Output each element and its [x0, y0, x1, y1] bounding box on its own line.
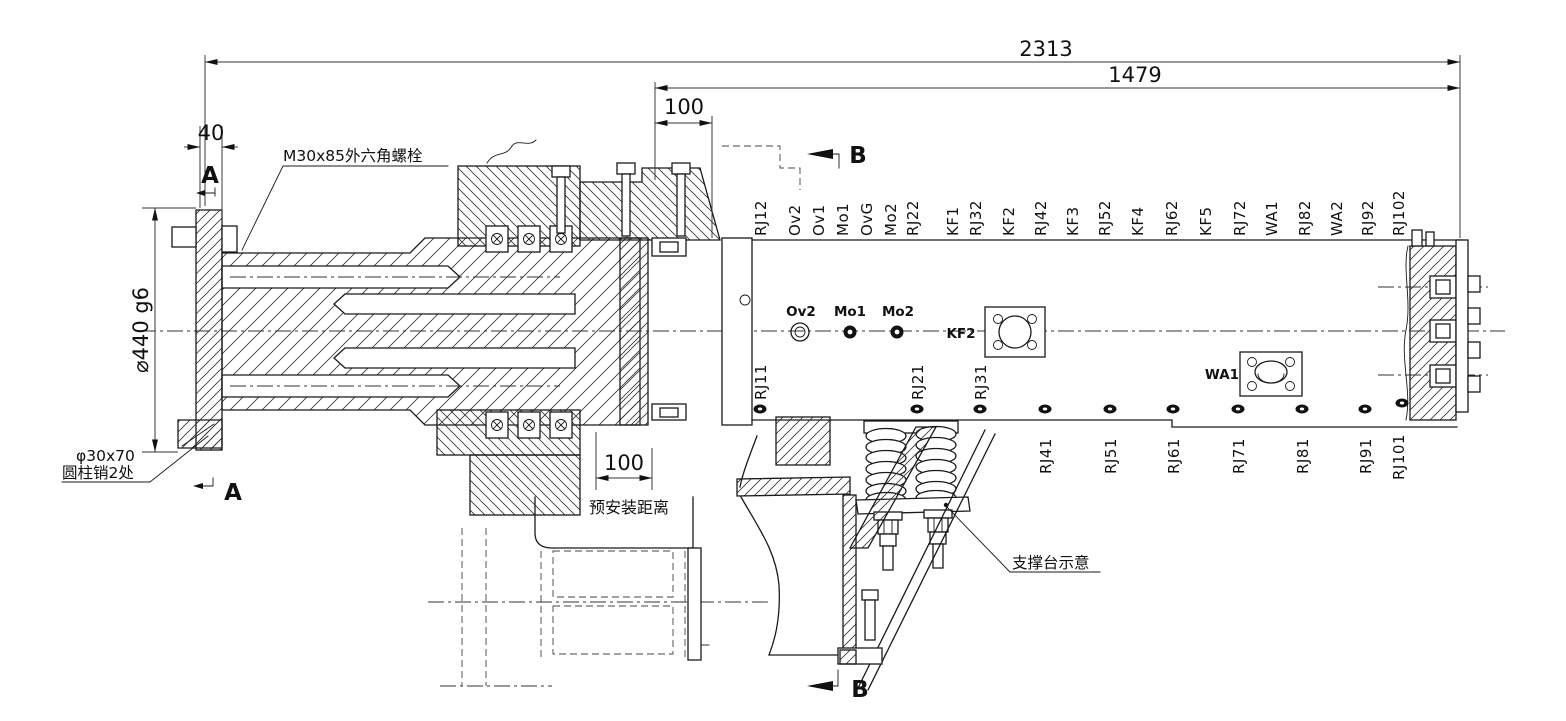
flange-disc: [620, 238, 648, 425]
support-bar: [737, 477, 850, 496]
port-label: RJ72: [1231, 200, 1249, 236]
hole-label: RJ51: [1102, 438, 1120, 474]
hidden-outline: [722, 146, 800, 190]
section-marker-a-top: A: [196, 163, 219, 196]
flange-lug: [172, 227, 196, 247]
section-letter: A: [201, 163, 219, 189]
foot-bolt-head: [862, 590, 878, 600]
point-label: Ov2: [786, 304, 816, 320]
port-label: Mo2: [882, 203, 900, 236]
housing-lower-block2: [470, 455, 580, 515]
callout-support: 支撑台示意: [947, 507, 1100, 572]
support-column: [843, 495, 856, 655]
support-block: [776, 417, 830, 465]
support-web: [740, 436, 843, 655]
hole-label: RJ81: [1294, 438, 1312, 474]
hole-label: RJ101: [1390, 434, 1408, 480]
wa1-plate: [1240, 352, 1302, 396]
section-letter: B: [851, 677, 869, 703]
support-foot-hatch: [840, 650, 856, 664]
top-port-labels: RJ12 Ov2 Ov1 Mo1 OvG Mo2 RJ22 KF1 RJ32 K…: [752, 190, 1408, 236]
gearbox: [535, 497, 709, 660]
seal-row-bottom: [486, 412, 572, 438]
plate-label: WA1: [1205, 367, 1239, 383]
point-label: Mo2: [882, 304, 914, 320]
plate-label: KF2: [946, 326, 975, 342]
port-label: RJ102: [1390, 190, 1408, 236]
support-platform: [737, 417, 995, 690]
dim-preinstall-text: 100: [604, 451, 644, 475]
port-label: RJ92: [1359, 200, 1377, 236]
port-label: Ov2: [786, 204, 804, 236]
end-cap-plate: [1456, 240, 1468, 412]
engineering-drawing: 2313 1479 100 40 ⌀440 g6 100 预安装距离 A A B: [0, 0, 1566, 721]
dimension-beam: 1479: [655, 63, 1460, 180]
dim-diameter-text: ⌀440 g6: [129, 287, 153, 373]
preinstall-note: 预安装距离: [589, 498, 669, 517]
dim-beam-text: 1479: [1108, 63, 1161, 87]
hex-bolt-label: M30x85外六角螺栓: [283, 147, 423, 165]
port-label: RJ82: [1296, 200, 1314, 236]
point-label: Mo1: [834, 304, 866, 320]
dim-flange-text: 40: [198, 121, 225, 145]
hole-label: RJ41: [1037, 438, 1055, 474]
ov2-port: [791, 323, 809, 341]
port-label: WA2: [1328, 201, 1346, 236]
beam: [722, 230, 1480, 427]
port-label: KF1: [944, 206, 962, 236]
beam-end-plate-left: [722, 238, 752, 425]
dim-overall-text: 2313: [1019, 37, 1072, 61]
connector-bolt-top-inner: [660, 242, 678, 252]
port-label: KF2: [1000, 206, 1018, 236]
hole-label: RJ21: [909, 364, 927, 400]
flange-plate: [196, 210, 222, 450]
port-label: RJ12: [752, 200, 770, 236]
drawing-canvas: 2313 1479 100 40 ⌀440 g6 100 预安装距离 A A B: [0, 0, 1566, 721]
section-marker-b-top: B: [807, 143, 867, 169]
section-letter: B: [849, 143, 867, 169]
shaft-channel: [334, 294, 575, 314]
port-label: KF4: [1129, 206, 1147, 236]
hex-bolt: [222, 226, 237, 252]
hole-label: RJ61: [1165, 438, 1183, 474]
section-marker-b-bottom: B: [807, 670, 869, 703]
port-label: Ov1: [810, 204, 828, 236]
shaft-channel: [334, 348, 575, 368]
section-letter: A: [224, 480, 242, 506]
mo2-port: [891, 326, 904, 339]
port-label: KF5: [1197, 206, 1215, 236]
dim-top-offset-text: 100: [664, 95, 704, 119]
upper-hole-labels: RJ11 RJ21 RJ31: [752, 364, 990, 400]
port-label: Mo1: [834, 203, 852, 236]
break-line: [487, 140, 536, 163]
end-cap-bolts: [1430, 276, 1456, 387]
hole-label: RJ11: [752, 364, 770, 400]
port-label: RJ62: [1163, 200, 1181, 236]
callout-hex-bolt: M30x85外六角螺栓: [242, 147, 448, 250]
pin-note-label: 圆柱销2处: [62, 464, 134, 482]
lower-hole-labels: RJ41 RJ51 RJ61 RJ71 RJ81 RJ91 RJ101: [1037, 434, 1408, 480]
dimension-preinstall: 100 预安装距离: [589, 432, 669, 517]
hole-label: RJ31: [972, 364, 990, 400]
port-label: OvG: [858, 202, 876, 236]
port-label: RJ42: [1032, 200, 1050, 236]
break-line: [1404, 246, 1408, 420]
kf2-plate: [985, 307, 1045, 357]
mo1-port: [844, 326, 857, 339]
support-note-label: 支撑台示意: [1012, 553, 1090, 572]
anchor-bolt-right: [924, 510, 952, 568]
pin-size-label: φ30x70: [76, 447, 135, 465]
housing-upper-right: [580, 168, 720, 240]
beam-holes: [754, 399, 1409, 414]
port-label: RJ32: [967, 200, 985, 236]
port-label: KF3: [1064, 206, 1082, 236]
port-label: WA1: [1263, 201, 1281, 236]
hole-label: RJ71: [1230, 438, 1248, 474]
port-label: RJ52: [1096, 200, 1114, 236]
hole-label: RJ91: [1357, 438, 1375, 474]
section-marker-a-bottom: A: [193, 478, 242, 506]
connector-bolt-bottom-inner: [660, 408, 678, 417]
foot-bolt-stem: [865, 600, 875, 640]
gearbox-flange: [688, 548, 701, 660]
port-label: RJ22: [904, 200, 922, 236]
